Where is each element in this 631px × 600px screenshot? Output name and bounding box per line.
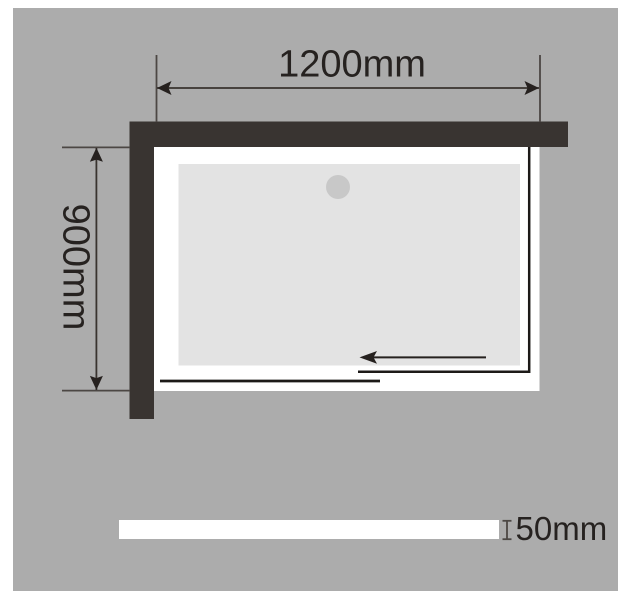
svg-text:900mm: 900mm (55, 204, 97, 331)
svg-text:50mm: 50mm (516, 510, 608, 547)
svg-text:1200mm: 1200mm (278, 44, 426, 86)
